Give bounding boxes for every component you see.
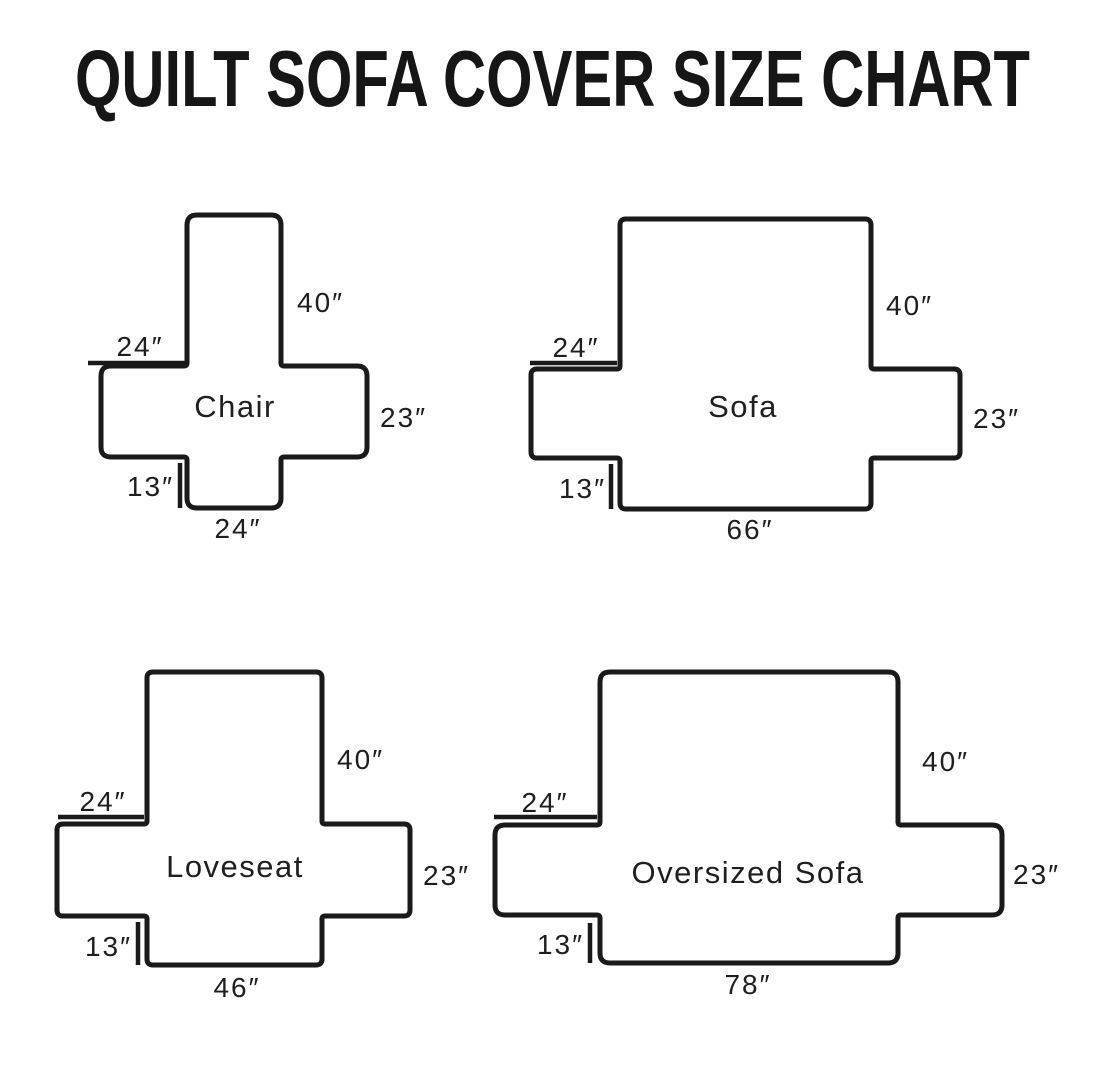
chair-base-width-label: 24″ (214, 513, 261, 544)
chair-skirt-label: 13″ (127, 471, 174, 502)
diagram-loveseat: 40″ 24″ 13″ 23″ 46″ Loveseat (57, 672, 470, 1003)
sofa-arm-width-label: 24″ (552, 332, 599, 363)
page-title: QUILT SOFA COVER SIZE CHART (75, 34, 1030, 123)
oversized-sofa-seat-depth-label: 23″ (1013, 859, 1060, 890)
oversized-sofa-name: Oversized Sofa (632, 855, 865, 890)
sofa-back-height-label: 40″ (886, 290, 933, 321)
loveseat-skirt-label: 13″ (85, 931, 132, 962)
loveseat-seat-depth-label: 23″ (423, 860, 470, 891)
loveseat-name: Loveseat (166, 849, 304, 884)
sofa-skirt-label: 13″ (559, 473, 606, 504)
size-chart-canvas: QUILT SOFA COVER SIZE CHART 40″ 24″ 13″ … (0, 0, 1100, 1092)
sofa-base-width-label: 66″ (726, 514, 773, 545)
oversized-sofa-skirt-label: 13″ (537, 929, 584, 960)
oversized-sofa-arm-width-label: 24″ (521, 787, 568, 818)
diagram-sofa: 40″ 24″ 13″ 23″ 66″ Sofa (530, 219, 1020, 545)
chair-arm-width-label: 24″ (116, 331, 163, 362)
sofa-name: Sofa (708, 389, 778, 424)
oversized-sofa-base-width-label: 78″ (724, 969, 771, 1000)
sofa-seat-depth-label: 23″ (973, 403, 1020, 434)
loveseat-back-height-label: 40″ (337, 744, 384, 775)
loveseat-base-width-label: 46″ (213, 972, 260, 1003)
diagram-chair: 40″ 24″ 13″ 23″ 24″ Chair (88, 215, 427, 544)
chair-seat-depth-label: 23″ (380, 402, 427, 433)
chair-back-height-label: 40″ (297, 287, 344, 318)
diagram-oversized-sofa: 40″ 24″ 13″ 23″ 78″ Oversized Sofa (494, 672, 1060, 1000)
chair-name: Chair (194, 389, 276, 424)
oversized-sofa-back-height-label: 40″ (922, 746, 969, 777)
loveseat-arm-width-label: 24″ (79, 786, 126, 817)
